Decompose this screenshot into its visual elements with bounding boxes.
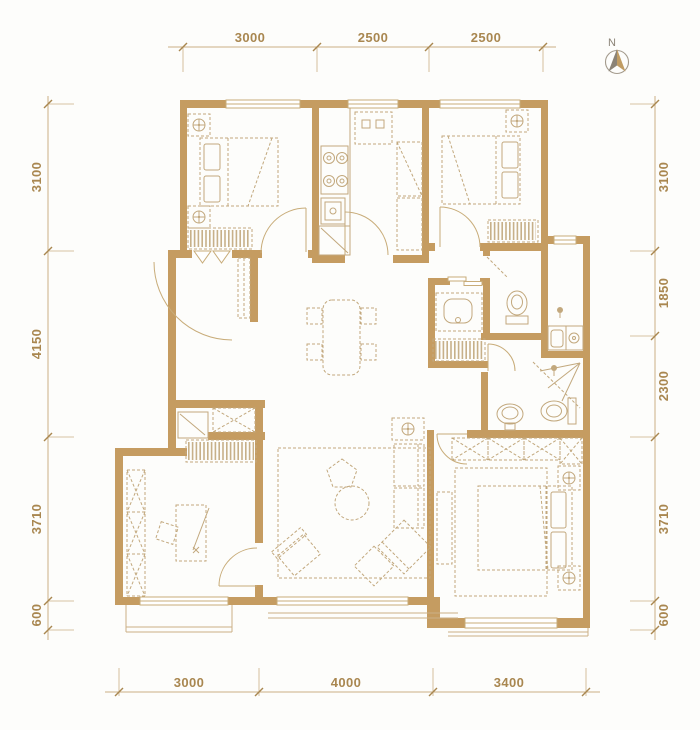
master-toilet-icon	[541, 398, 576, 424]
dining-chair	[307, 344, 322, 360]
bedroom1-door	[440, 207, 480, 247]
bedroom2-window	[226, 100, 300, 108]
dimension-bottom: 3000 4000 3400	[105, 668, 600, 696]
study	[127, 440, 256, 596]
dim-right-1: 3100	[656, 162, 671, 193]
laundry-window	[554, 236, 576, 244]
rug-outline	[455, 468, 547, 596]
windows	[126, 100, 588, 636]
rug-outline	[278, 448, 430, 578]
living-room	[272, 418, 431, 586]
wardrobe-x-icon	[213, 408, 255, 432]
lamp-icon	[193, 211, 205, 223]
lamp-icon	[511, 115, 523, 127]
dining-area	[307, 300, 376, 375]
dim-top-1: 3000	[235, 30, 266, 45]
dim-left-4: 600	[29, 604, 44, 627]
bathroom-sliding-door	[448, 277, 482, 286]
dim-left-2: 4150	[29, 329, 44, 360]
lamp-icon	[402, 423, 414, 435]
dim-left-3: 3710	[29, 504, 44, 535]
desk-lamp-arm	[193, 508, 209, 550]
wardrobe-icon	[188, 228, 252, 249]
master-bedroom	[437, 438, 582, 596]
dim-right-4: 3710	[656, 504, 671, 535]
guest-bathroom	[433, 293, 485, 361]
coffee-table-icon	[335, 486, 369, 520]
bathroom-cabinet-icon	[433, 339, 485, 361]
shoe-cabinet-icon	[238, 258, 250, 318]
bedroom-2	[188, 114, 278, 249]
lamp-icon	[563, 472, 575, 484]
dining-chair	[307, 308, 322, 324]
star-glyph	[193, 547, 199, 553]
lamp-icon	[193, 119, 205, 131]
washer-icon	[551, 330, 563, 347]
study-window	[140, 597, 228, 605]
dim-top-3: 2500	[471, 30, 502, 45]
dim-top-2: 2500	[358, 30, 389, 45]
wardrobe-icon	[488, 220, 538, 242]
dining-table-icon	[323, 300, 360, 375]
kitchen-window	[348, 100, 398, 108]
dim-right-5: 600	[656, 604, 671, 627]
desk-icon	[176, 505, 206, 561]
range-hood-icon	[355, 112, 392, 144]
dim-bottom-2: 4000	[331, 675, 362, 690]
fridge-icon	[397, 142, 422, 196]
kitchen-cabinet-icon	[397, 198, 422, 250]
laundry-counter	[548, 326, 583, 350]
pouf-icon	[327, 459, 357, 487]
faucet-icon	[557, 307, 563, 318]
cabinet-icon	[178, 412, 208, 438]
tv-console	[437, 492, 452, 564]
bedroom-1	[442, 110, 538, 242]
entry-door	[154, 251, 232, 340]
walls	[115, 100, 590, 628]
pedestal-basin-icon	[497, 404, 523, 430]
wardrobe-x-icon	[127, 470, 145, 596]
kitchen	[319, 108, 422, 255]
dim-bottom-3: 3400	[494, 675, 525, 690]
north-arrow: N	[606, 37, 629, 74]
double-bed-icon	[200, 138, 278, 206]
living-room-window	[277, 597, 408, 605]
dimension-top: 3000 2500 2500	[168, 30, 556, 72]
bedroom1-window	[440, 100, 520, 108]
dining-chair	[361, 344, 376, 360]
armchair-icon	[272, 527, 322, 577]
master-bathroom	[497, 362, 580, 430]
toilet-room-door	[487, 257, 507, 277]
toilet-icon	[506, 291, 528, 324]
lamp-icon	[563, 572, 575, 584]
wardrobe-x-icon	[452, 438, 582, 464]
dim-left-1: 3100	[29, 162, 44, 193]
floor-plan-page: N 3000 2500 2500 3000 4000 3400	[0, 0, 700, 730]
kitchen-sink-icon	[321, 198, 345, 224]
master-bedroom-window	[465, 618, 557, 628]
laundry-area	[548, 307, 583, 350]
north-label: N	[608, 37, 616, 49]
sofa-icon	[354, 444, 431, 586]
kitchen-door	[345, 212, 388, 255]
foyer	[238, 258, 250, 318]
laundry-sink-icon	[569, 333, 579, 343]
washbasin-icon	[444, 299, 472, 323]
doors	[154, 207, 515, 586]
dim-right-2: 1850	[656, 278, 671, 309]
bookshelf-icon	[186, 440, 256, 462]
dim-bottom-1: 3000	[174, 675, 205, 690]
dining-chair	[361, 308, 376, 324]
study-door	[219, 548, 257, 586]
dim-right-3: 2300	[656, 371, 671, 402]
dimension-left: 3100 4150 3710 600	[29, 96, 74, 640]
toilet-room	[506, 291, 528, 324]
dimension-right: 3100 1850 2300 3710 600	[630, 96, 671, 640]
desk-chair	[156, 522, 179, 545]
floor-plan-drawing: N 3000 2500 2500 3000 4000 3400	[0, 0, 700, 730]
double-bed-icon	[478, 486, 572, 570]
double-bed-icon	[442, 136, 520, 204]
bedroom2-door	[261, 208, 306, 253]
master-bathroom-door	[488, 344, 515, 371]
